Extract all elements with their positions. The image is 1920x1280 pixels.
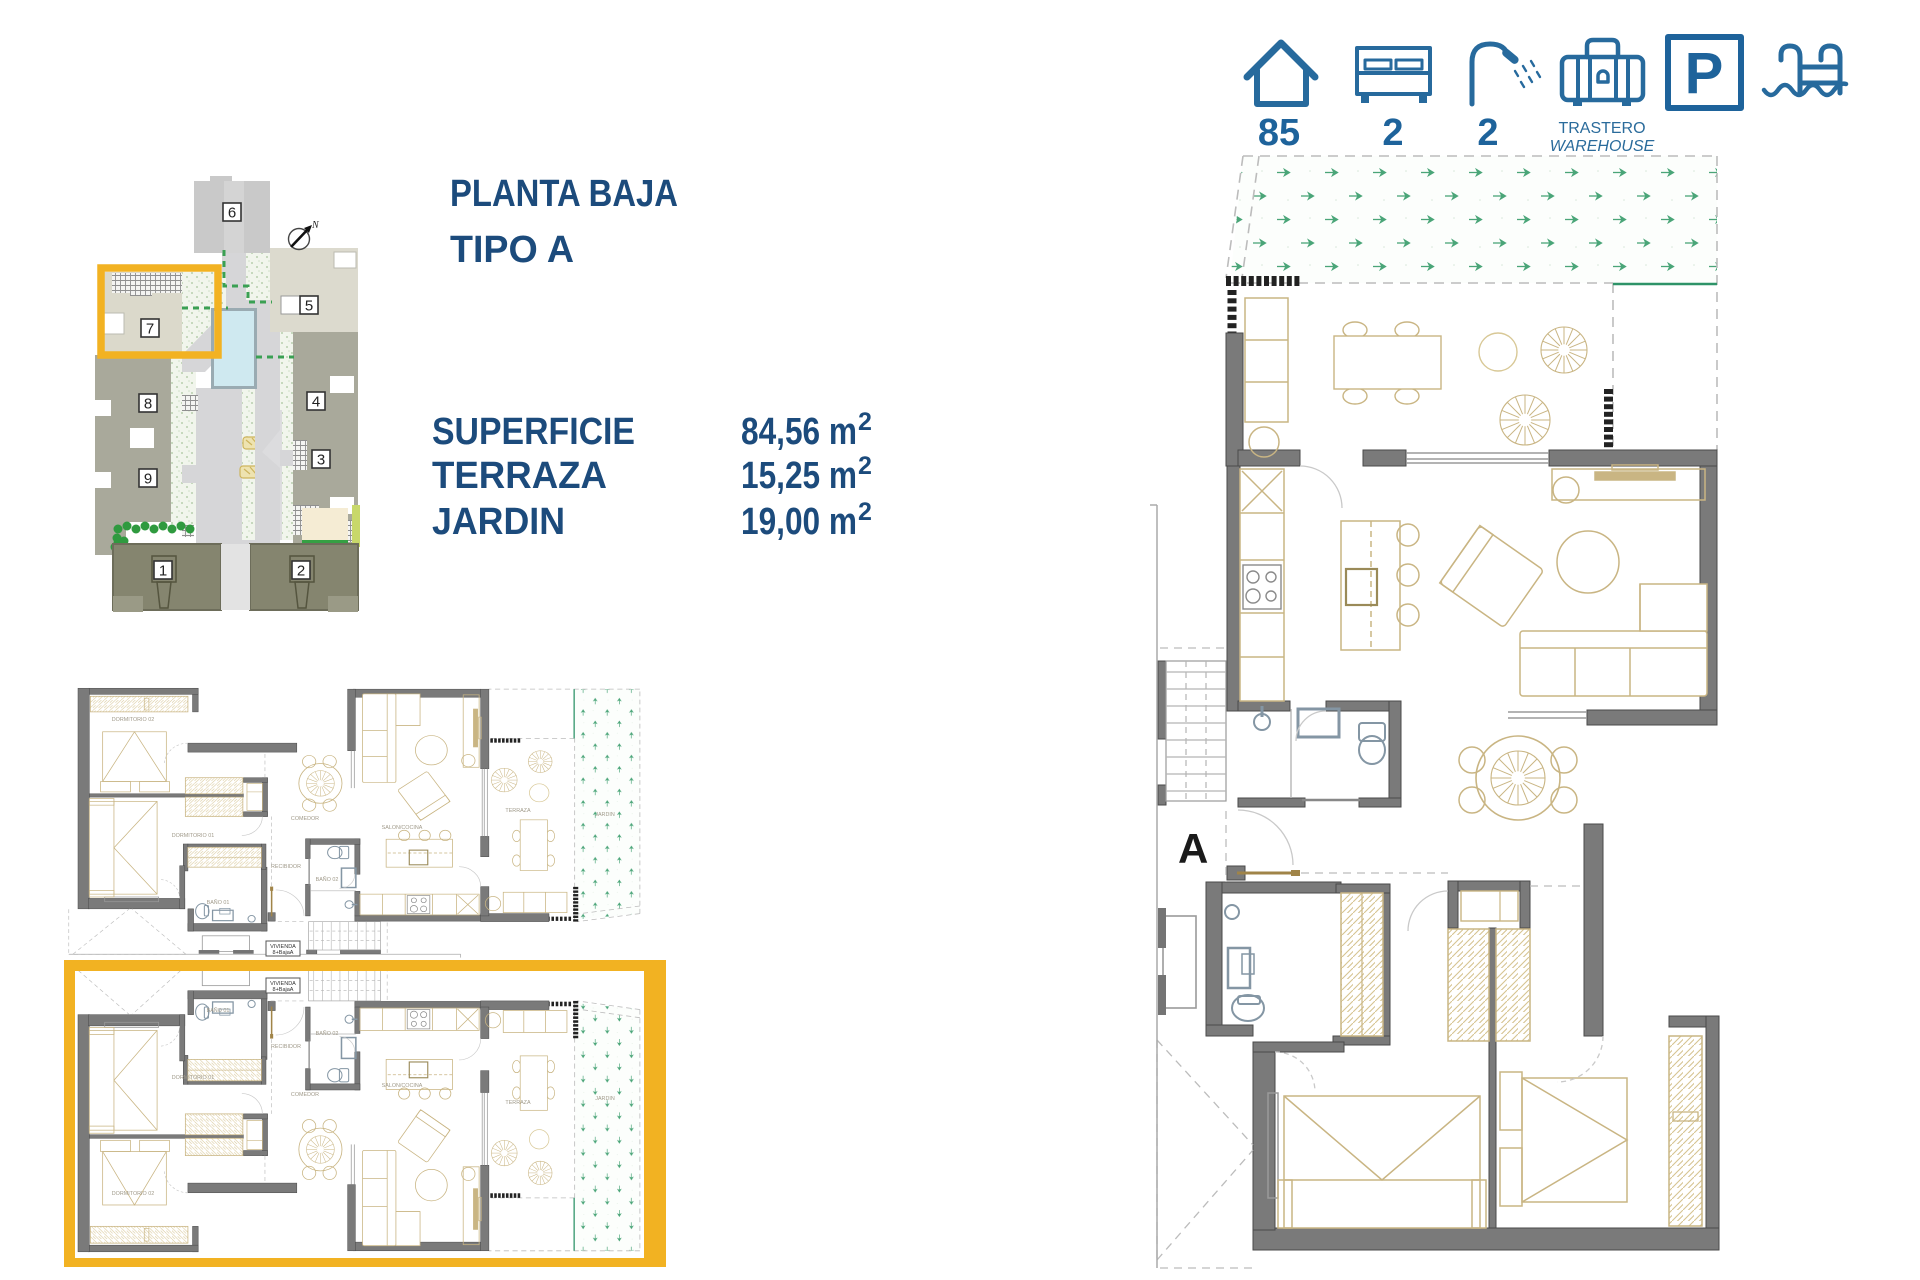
svg-text:TERRAZA: TERRAZA <box>432 455 607 497</box>
svg-text:7: 7 <box>146 321 154 338</box>
svg-text:5: 5 <box>305 298 313 315</box>
svg-text:8+BajaA: 8+BajaA <box>273 950 294 956</box>
svg-text:2: 2 <box>858 452 872 480</box>
svg-text:DORMITORIO 01: DORMITORIO 01 <box>172 1075 214 1081</box>
svg-text:2: 2 <box>858 408 872 436</box>
svg-text:3: 3 <box>317 452 325 469</box>
svg-text:P: P <box>1685 41 1724 106</box>
svg-text:BAÑO 01: BAÑO 01 <box>207 899 230 906</box>
svg-text:PLANTA BAJA: PLANTA BAJA <box>450 173 678 215</box>
svg-text:1: 1 <box>159 563 167 580</box>
svg-text:BAÑO 02: BAÑO 02 <box>316 1030 339 1037</box>
svg-text:6: 6 <box>228 205 236 222</box>
svg-text:BAÑO 01: BAÑO 01 <box>207 1007 230 1014</box>
svg-text:SALON/COCINA: SALON/COCINA <box>382 1083 423 1089</box>
svg-text:JARDIN: JARDIN <box>595 1096 615 1102</box>
svg-text:TIPO A: TIPO A <box>450 229 574 271</box>
svg-text:8+BajaA: 8+BajaA <box>273 987 294 993</box>
svg-text:COMEDOR: COMEDOR <box>291 1092 319 1098</box>
svg-text:19,00 m: 19,00 m <box>741 501 857 543</box>
svg-text:4: 4 <box>312 394 320 411</box>
svg-text:SUPERFICIE: SUPERFICIE <box>432 411 635 453</box>
svg-text:DORMITORIO 02: DORMITORIO 02 <box>112 1191 154 1197</box>
svg-text:DORMITORIO 01: DORMITORIO 01 <box>172 833 214 839</box>
svg-text:9: 9 <box>144 471 152 488</box>
svg-text:JARDIN: JARDIN <box>595 812 615 818</box>
svg-text:COMEDOR: COMEDOR <box>291 816 319 822</box>
svg-text:85: 85 <box>1258 112 1300 154</box>
svg-text:DORMITORIO 02: DORMITORIO 02 <box>112 717 154 723</box>
svg-text:84,56 m: 84,56 m <box>741 411 857 453</box>
svg-text:JARDIN: JARDIN <box>432 501 565 543</box>
svg-text:2: 2 <box>858 498 872 526</box>
svg-text:BAÑO 02: BAÑO 02 <box>316 876 339 883</box>
svg-text:WAREHOUSE: WAREHOUSE <box>1550 138 1655 155</box>
svg-text:TERRAZA: TERRAZA <box>505 808 531 814</box>
svg-text:TRASTERO: TRASTERO <box>1558 120 1645 137</box>
svg-text:8: 8 <box>144 396 152 413</box>
svg-text:TERRAZA: TERRAZA <box>505 1100 531 1106</box>
svg-text:15,25 m: 15,25 m <box>741 455 857 497</box>
svg-text:N: N <box>311 220 320 231</box>
svg-text:2: 2 <box>297 563 305 580</box>
svg-text:SALON/COCINA: SALON/COCINA <box>382 825 423 831</box>
svg-text:2: 2 <box>1477 112 1498 154</box>
svg-text:2: 2 <box>1382 112 1403 154</box>
svg-text:RECIBIDOR: RECIBIDOR <box>271 864 301 870</box>
svg-text:A: A <box>1178 825 1208 872</box>
svg-text:RECIBIDOR: RECIBIDOR <box>271 1044 301 1050</box>
